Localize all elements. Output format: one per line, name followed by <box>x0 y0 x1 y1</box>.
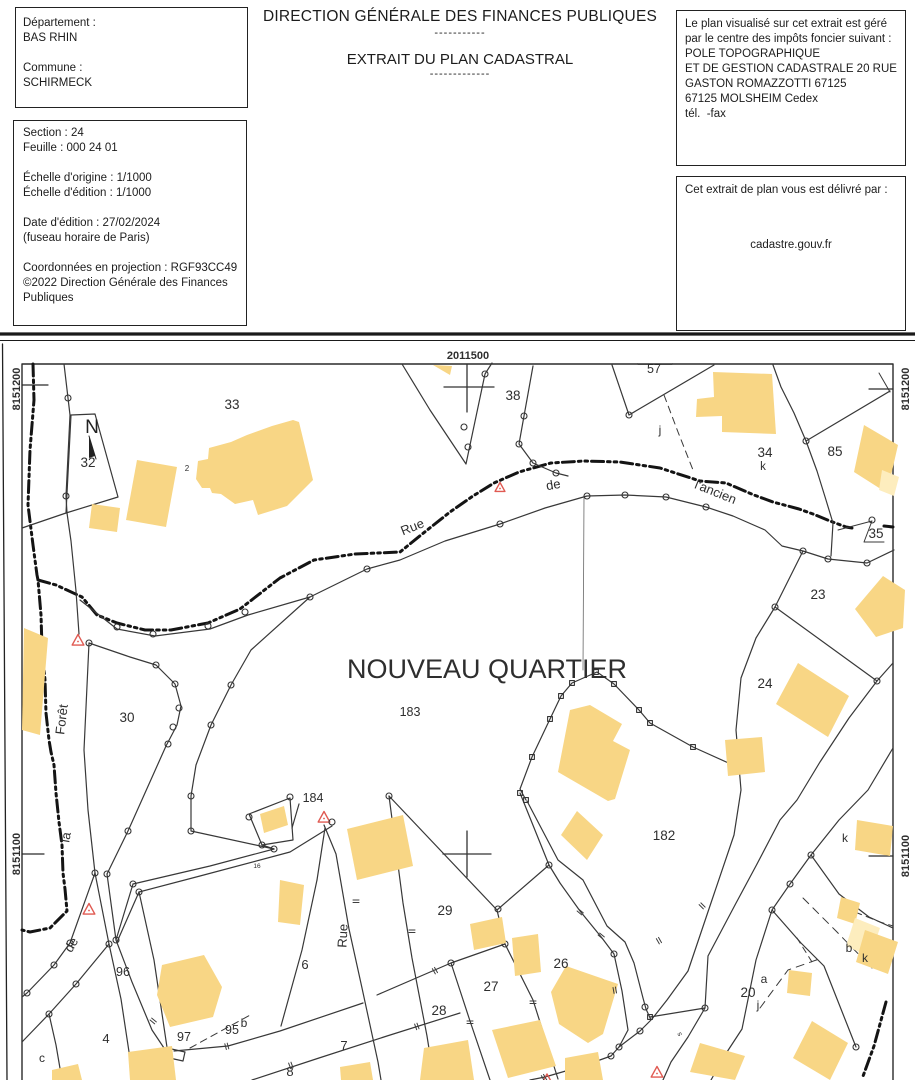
svg-text:Rue: Rue <box>398 515 426 538</box>
svg-text:Forêt: Forêt <box>52 703 71 735</box>
svg-text:N: N <box>85 417 99 438</box>
svg-text:26: 26 <box>553 956 568 971</box>
svg-text:95: 95 <box>225 1023 239 1037</box>
svg-text:a: a <box>761 972 768 986</box>
svg-text:j: j <box>756 998 760 1012</box>
svg-text:182: 182 <box>653 828 676 843</box>
svg-text:4: 4 <box>102 1031 109 1046</box>
svg-text:8151100: 8151100 <box>11 833 23 875</box>
svg-text:k: k <box>842 831 849 845</box>
svg-text:85: 85 <box>827 444 842 459</box>
svg-text:97: 97 <box>177 1030 191 1044</box>
svg-text:b: b <box>241 1016 248 1030</box>
svg-text:6: 6 <box>301 957 308 972</box>
svg-text:38: 38 <box>505 388 520 403</box>
svg-text:184: 184 <box>303 791 324 805</box>
svg-text:30: 30 <box>119 710 134 725</box>
svg-text:la: la <box>57 830 74 843</box>
svg-text:c: c <box>39 1051 45 1065</box>
svg-text:b: b <box>846 941 853 955</box>
svg-text:Rue: Rue <box>334 923 350 948</box>
svg-text:27: 27 <box>483 979 498 994</box>
svg-text:33: 33 <box>224 397 239 412</box>
svg-text:23: 23 <box>810 587 825 602</box>
svg-text:16: 16 <box>253 863 261 870</box>
svg-text:96: 96 <box>116 965 130 979</box>
svg-text:s: s <box>675 1031 683 1038</box>
svg-text:183: 183 <box>400 705 421 719</box>
svg-text:29: 29 <box>437 903 452 918</box>
svg-text:k: k <box>760 461 766 473</box>
svg-text:20: 20 <box>740 985 755 1000</box>
svg-text:k: k <box>862 951 869 965</box>
svg-text:8151200: 8151200 <box>900 368 912 411</box>
svg-text:7: 7 <box>340 1038 347 1053</box>
svg-text:j: j <box>658 423 662 437</box>
svg-text:24: 24 <box>757 676 773 691</box>
svg-text:8151200: 8151200 <box>11 368 23 411</box>
svg-text:28: 28 <box>431 1003 446 1018</box>
svg-text:2: 2 <box>185 464 190 473</box>
svg-text:NOUVEAU QUARTIER: NOUVEAU QUARTIER <box>347 654 627 684</box>
svg-text:2011500: 2011500 <box>447 350 489 362</box>
svg-text:35: 35 <box>868 526 883 541</box>
svg-text:34: 34 <box>757 445 773 460</box>
svg-text:de: de <box>545 476 562 493</box>
svg-text:8151100: 8151100 <box>900 835 912 877</box>
svg-text:32: 32 <box>80 455 95 470</box>
